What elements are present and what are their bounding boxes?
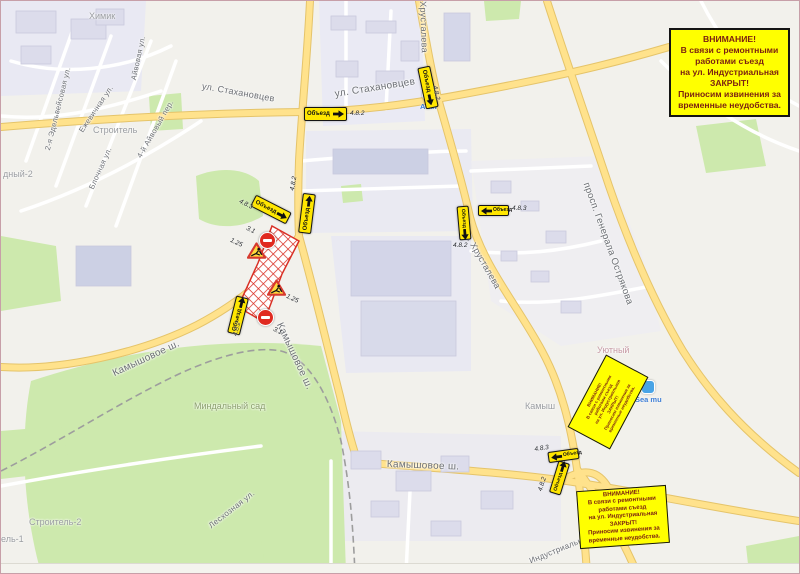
detour-sign: Объезд	[250, 195, 292, 225]
area-label: ель-1	[1, 534, 24, 544]
sign-code: 4.8.3	[238, 198, 254, 211]
street-label: ул. Стахановцев	[334, 76, 416, 100]
detour-sign: Объезд	[298, 193, 316, 234]
sign-code: 3.1	[245, 225, 256, 235]
map-canvas[interactable]: ВНИМАНИЕ!В связи с ремонтнымиработами съ…	[1, 1, 799, 573]
roadworks-sign	[247, 242, 266, 264]
map-annotations: ВНИМАНИЕ!В связи с ремонтнымиработами съ…	[1, 1, 799, 573]
detour-sign: Объезд	[457, 206, 472, 241]
area-label: Химик	[89, 11, 115, 21]
warning-line: на ул. Индустриальная	[671, 67, 788, 78]
small-warning-box: ВНИМАНИЕ!В связи с ремонтнымиработами съ…	[576, 485, 670, 549]
area-label: Камыш	[525, 401, 555, 411]
no-entry-sign	[257, 309, 274, 326]
sign-code: 4.8.3	[512, 205, 526, 212]
sign-code: 4.8.3	[534, 444, 549, 453]
street-label: Блочная ул.	[87, 146, 114, 191]
street-label: Хрусталева	[418, 1, 430, 53]
street-label: ул. Стахановцев	[201, 81, 275, 104]
warning-line: В связи с ремонтными	[671, 45, 788, 56]
roadworks-sign	[267, 279, 286, 301]
street-label: Лесхозная ул.	[207, 489, 256, 530]
street-label: Камышовое ш.	[111, 338, 181, 379]
street-label: 4-й Айвовый пер.	[135, 99, 175, 160]
detour-sign: Объезд	[304, 107, 347, 121]
detour-sign: Объезд	[549, 460, 570, 495]
area-label: Строитель-2	[29, 517, 81, 527]
sea-mall-label: Sea mu	[635, 395, 662, 404]
warning-line: ВНИМАНИЕ!	[671, 34, 788, 45]
map-screenshot: ВНИМАНИЕ!В связи с ремонтнымиработами съ…	[0, 0, 800, 574]
warning-line: Приносим извинения за	[671, 89, 788, 100]
area-label: Строитель	[93, 125, 137, 135]
sign-code: 4.8.2	[537, 476, 548, 492]
street-label: Айвовая ул.	[129, 35, 147, 81]
street-label: просп. Генерала Острякова	[581, 181, 636, 306]
sign-code: 1.25	[285, 293, 299, 305]
warning-line: работами съезд	[671, 56, 788, 67]
sign-code: 4.8.2	[289, 176, 298, 191]
sign-code: 4.8.2	[453, 242, 467, 249]
sign-code: 4.8.2	[350, 110, 364, 117]
area-label: дный-2	[3, 169, 33, 179]
main-warning-box: ВНИМАНИЕ!В связи с ремонтнымиработами съ…	[669, 28, 790, 117]
bottom-strip	[1, 563, 799, 574]
sign-code: 1.25	[229, 237, 243, 249]
area-label: Уютный	[597, 345, 629, 355]
street-label: Камышовое ш.	[387, 459, 460, 473]
detour-sign: Объезд	[478, 205, 509, 216]
street-label: 2-я Эдельвейсовая ул.	[43, 66, 72, 151]
area-label: Миндальный сад	[194, 401, 265, 411]
warning-line: ЗАКРЫТ!	[671, 78, 788, 89]
warning-line: временные неудобства.	[671, 100, 788, 111]
